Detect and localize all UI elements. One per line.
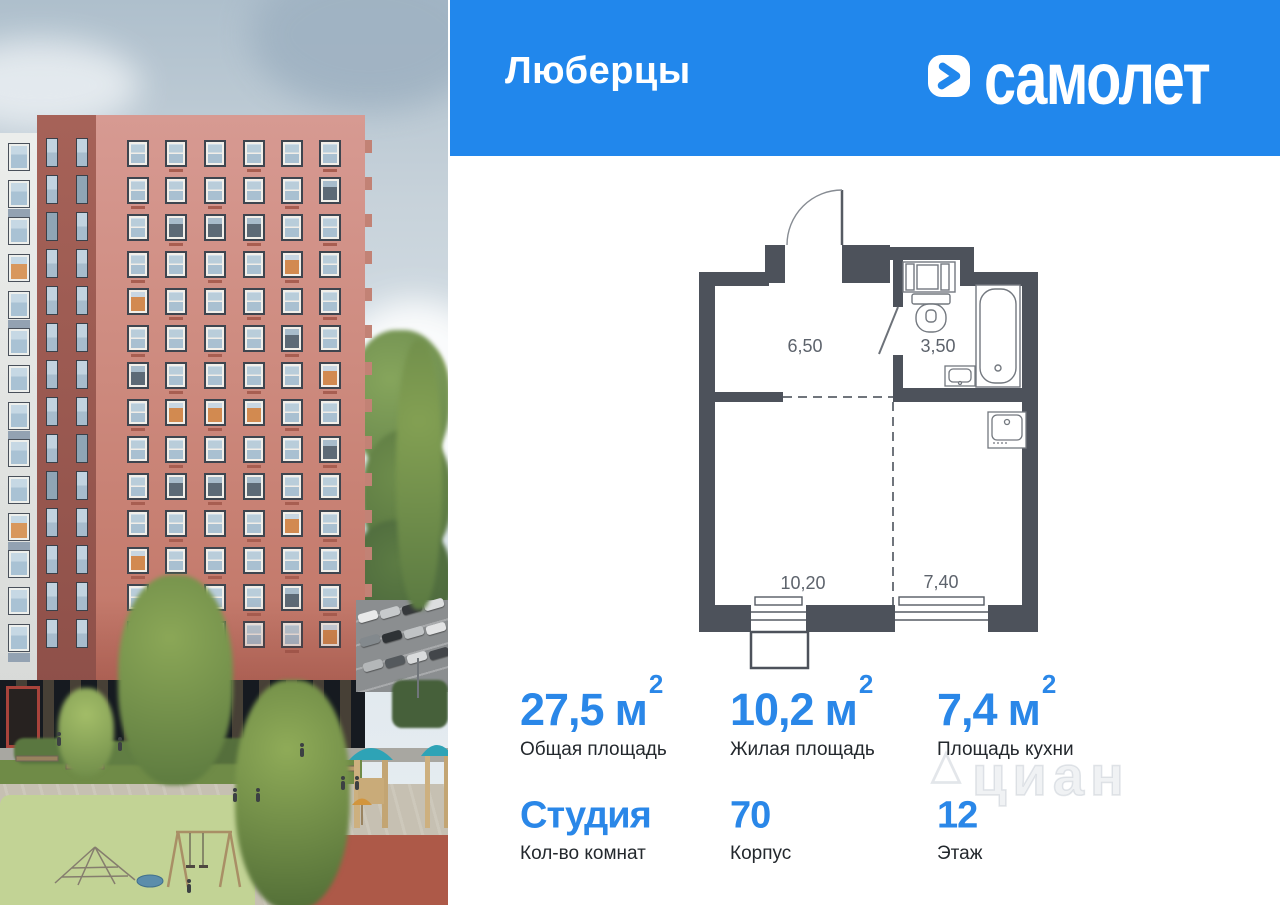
floor-plan: 6,50 3,50 10,20 7,40 <box>660 170 1080 680</box>
building-window <box>243 436 265 463</box>
building-window <box>165 325 187 352</box>
building-window <box>243 325 265 352</box>
building-window <box>76 471 88 500</box>
window-sill <box>169 539 183 542</box>
building-window <box>8 513 30 541</box>
project-title: Люберцы <box>505 50 691 93</box>
building-window <box>46 360 58 389</box>
building-window <box>281 251 303 278</box>
building-window <box>165 362 187 389</box>
window-sill <box>208 354 222 357</box>
stat-unit: м <box>825 684 857 735</box>
building-window <box>281 140 303 167</box>
building-window <box>281 325 303 352</box>
window-sill <box>323 169 337 172</box>
stat-sup: 2 <box>649 669 662 699</box>
window-sill <box>323 539 337 542</box>
building-window <box>281 288 303 315</box>
samolet-logo: самолет <box>928 42 1273 116</box>
washing-machine-icon <box>903 262 955 292</box>
stat-label: Общая площадь <box>520 739 667 761</box>
building-window <box>319 362 341 389</box>
building-window <box>204 510 226 537</box>
building-window <box>319 288 341 315</box>
window-sill <box>247 539 261 542</box>
building-window <box>204 251 226 278</box>
building-window <box>46 212 58 241</box>
building-window <box>165 547 187 574</box>
building-window <box>8 402 30 430</box>
building-window <box>319 325 341 352</box>
stat-floor: 12 Этаж <box>937 785 982 865</box>
building-window <box>8 291 30 319</box>
stat-label: Кол-во комнат <box>520 843 653 865</box>
building-window <box>76 545 88 574</box>
building-window <box>127 399 149 426</box>
window-sill <box>323 317 337 320</box>
building-window <box>76 286 88 315</box>
building-window <box>8 180 30 208</box>
window-sill <box>208 428 222 431</box>
building-window <box>204 473 226 500</box>
building-window <box>165 436 187 463</box>
samolet-logo-icon <box>928 55 970 97</box>
window-sill <box>131 206 145 209</box>
building-window <box>243 510 265 537</box>
building-window <box>76 434 88 463</box>
person <box>187 884 191 893</box>
building-window <box>46 175 58 204</box>
tree <box>58 688 114 776</box>
person <box>300 748 304 757</box>
building-window <box>46 323 58 352</box>
stat-total-area: 27,5м2 Общая площадь <box>520 678 667 761</box>
building-photo <box>0 0 448 905</box>
building-window <box>204 140 226 167</box>
building-window <box>165 251 187 278</box>
balcony <box>751 632 808 668</box>
building-window <box>281 473 303 500</box>
room-area-label: 10,20 <box>780 573 825 593</box>
stat-value: 70 <box>730 795 770 837</box>
building-window <box>46 138 58 167</box>
building-window <box>319 399 341 426</box>
building-window <box>8 550 30 578</box>
building-window <box>76 138 88 167</box>
building-window <box>76 397 88 426</box>
building-window <box>8 365 30 393</box>
building-window <box>127 362 149 389</box>
listing-card[interactable]: Люберцы самолет <box>0 0 1280 905</box>
window-sill <box>285 354 299 357</box>
building-window <box>76 175 88 204</box>
building-window <box>243 140 265 167</box>
building-window <box>243 214 265 241</box>
building-window <box>8 143 30 171</box>
building-window <box>319 436 341 463</box>
window-sill <box>169 317 183 320</box>
bathroom-door-leaf <box>879 307 898 354</box>
building-window <box>281 436 303 463</box>
building-window <box>46 545 58 574</box>
window-sill <box>169 243 183 246</box>
building-window <box>243 362 265 389</box>
project-banner: Люберцы самолет <box>450 0 1280 156</box>
building-window <box>8 254 30 282</box>
window-sill <box>285 206 299 209</box>
room-area-label: 3,50 <box>920 336 955 356</box>
window-sill <box>169 465 183 468</box>
building-window <box>243 473 265 500</box>
building-window <box>204 288 226 315</box>
building-window <box>46 286 58 315</box>
window-sill <box>247 465 261 468</box>
building-window <box>243 177 265 204</box>
stat-value: 27,5 <box>520 684 604 735</box>
window-sill <box>208 280 222 283</box>
person <box>341 781 345 790</box>
building-window <box>281 547 303 574</box>
stat-kitchen-area: 7,4м2 Площадь кухни <box>937 678 1074 761</box>
stat-unit: м <box>1008 684 1040 735</box>
stat-value: 12 <box>937 795 977 837</box>
window-sill <box>169 391 183 394</box>
building-window <box>204 325 226 352</box>
window-sill <box>247 317 261 320</box>
building-window <box>204 436 226 463</box>
tree <box>235 680 350 905</box>
room-area-label: 7,40 <box>923 572 958 592</box>
tree <box>118 575 233 785</box>
building-window <box>76 323 88 352</box>
building-window <box>8 439 30 467</box>
building-window <box>76 360 88 389</box>
building-window <box>127 547 149 574</box>
building-window <box>243 547 265 574</box>
building-window <box>204 177 226 204</box>
stat-unit: м <box>615 684 647 735</box>
window-sill <box>323 465 337 468</box>
building-window <box>319 251 341 278</box>
bathtub-icon <box>976 285 1020 387</box>
building-window <box>165 473 187 500</box>
kitchen-sink-icon <box>988 412 1026 448</box>
building-window <box>204 547 226 574</box>
building-window <box>46 471 58 500</box>
person <box>57 737 61 746</box>
room-area-label: 6,50 <box>787 336 822 356</box>
window-sill <box>285 502 299 505</box>
window-sill <box>285 576 299 579</box>
stat-living-area: 10,2м2 Жилая площадь <box>730 678 875 761</box>
person <box>256 793 260 802</box>
door-arc <box>787 190 842 245</box>
info-panel: Люберцы самолет <box>448 0 1280 905</box>
building-window <box>243 399 265 426</box>
building-window <box>46 249 58 278</box>
window-sill <box>169 169 183 172</box>
tree <box>396 340 442 610</box>
building-window <box>281 214 303 241</box>
building-window <box>281 399 303 426</box>
window-sill <box>247 243 261 246</box>
window-sill <box>208 502 222 505</box>
building-window <box>281 362 303 389</box>
building-window <box>46 508 58 537</box>
stat-sup: 2 <box>1042 669 1055 699</box>
building-window <box>319 177 341 204</box>
building-window <box>8 328 30 356</box>
window-sill <box>208 206 222 209</box>
building-window <box>319 547 341 574</box>
stat-label: Этаж <box>937 843 982 865</box>
building-window <box>165 510 187 537</box>
building-window <box>243 251 265 278</box>
building-window <box>127 473 149 500</box>
swing-set <box>168 831 240 887</box>
building-window <box>281 177 303 204</box>
toilet-icon <box>912 294 950 332</box>
facade-ledges <box>365 140 372 620</box>
building-window <box>8 476 30 504</box>
building-window <box>243 288 265 315</box>
building-window <box>319 473 341 500</box>
window-sill <box>323 391 337 394</box>
window-sill <box>131 280 145 283</box>
building-window <box>127 436 149 463</box>
window-sill <box>131 428 145 431</box>
building-window <box>204 214 226 241</box>
building-window <box>76 508 88 537</box>
sink-icon <box>945 366 975 386</box>
stat-label: Площадь кухни <box>937 739 1074 761</box>
building-window <box>8 217 30 245</box>
building-window <box>165 140 187 167</box>
person <box>355 781 359 790</box>
person <box>233 793 237 802</box>
building-window <box>204 399 226 426</box>
window-sill <box>131 576 145 579</box>
building-window <box>204 362 226 389</box>
stat-value: Студия <box>520 795 651 837</box>
building-window <box>319 214 341 241</box>
building-window <box>76 249 88 278</box>
climbing-pyramid <box>55 847 135 885</box>
stat-value: 10,2 <box>730 684 814 735</box>
building-window <box>127 325 149 352</box>
building-window <box>127 177 149 204</box>
stat-value: 7,4 <box>937 684 997 735</box>
window-sill <box>131 354 145 357</box>
building-window <box>127 510 149 537</box>
building-window <box>127 140 149 167</box>
person <box>118 742 122 751</box>
building-window <box>76 212 88 241</box>
building-window <box>319 510 341 537</box>
building-window <box>127 251 149 278</box>
window-sill <box>247 391 261 394</box>
building-window <box>127 288 149 315</box>
stat-label: Корпус <box>730 843 791 865</box>
building-window <box>165 214 187 241</box>
building-window <box>281 510 303 537</box>
play-tower <box>349 745 448 828</box>
spinner-carousel <box>137 875 163 887</box>
stat-sup: 2 <box>859 669 872 699</box>
stats-grid: 27,5м2 Общая площадь 10,2м2 Жилая площад… <box>520 678 1220 878</box>
building-window <box>127 214 149 241</box>
window-sill <box>285 428 299 431</box>
building-window <box>46 434 58 463</box>
window-sill <box>208 576 222 579</box>
building-window <box>165 177 187 204</box>
stat-building: 70 Корпус <box>730 785 791 865</box>
stat-label: Жилая площадь <box>730 739 875 761</box>
building-window <box>165 399 187 426</box>
window-sill <box>323 243 337 246</box>
building-window <box>165 288 187 315</box>
stat-rooms: Студия Кол-во комнат <box>520 785 653 865</box>
building-window <box>319 140 341 167</box>
samolet-logo-text: самолет <box>984 42 1209 116</box>
window-sill <box>247 169 261 172</box>
building-window <box>46 397 58 426</box>
window-sill <box>285 280 299 283</box>
window-sill <box>131 502 145 505</box>
